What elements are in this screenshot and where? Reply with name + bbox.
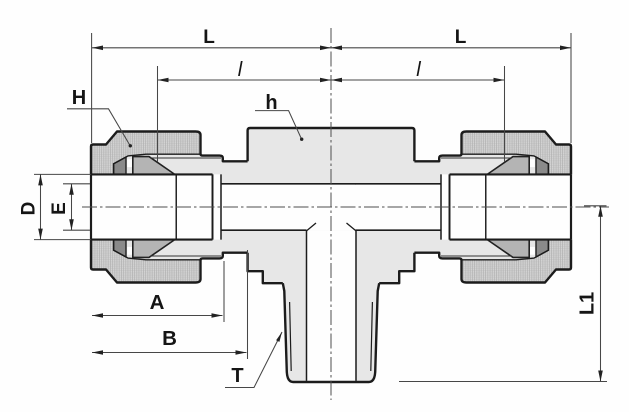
- svg-text:A: A: [150, 291, 165, 314]
- svg-text:B: B: [162, 327, 177, 350]
- svg-text:H: H: [72, 87, 86, 109]
- svg-text:L1: L1: [577, 292, 599, 315]
- svg-text:T: T: [231, 365, 243, 387]
- svg-text:l: l: [416, 59, 421, 81]
- svg-text:L: L: [203, 27, 215, 48]
- svg-text:E: E: [49, 202, 70, 215]
- svg-text:D: D: [19, 202, 40, 216]
- svg-text:L: L: [455, 27, 467, 48]
- svg-text:l: l: [238, 59, 243, 81]
- svg-text:h: h: [265, 92, 277, 114]
